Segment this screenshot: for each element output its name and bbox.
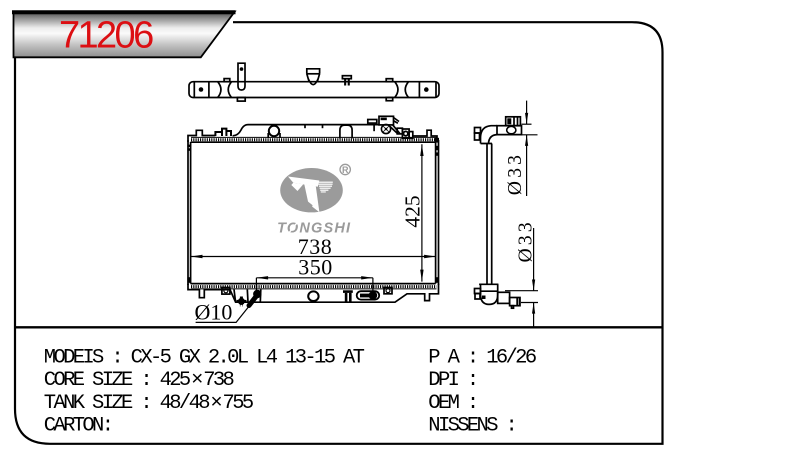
svg-text:OEM :: OEM : — [428, 392, 476, 415]
svg-text:CORE SIZE : 425×738: CORE SIZE : 425×738 — [44, 369, 234, 392]
svg-text:Ø33: Ø33 — [515, 219, 536, 262]
svg-text:CARTON:: CARTON: — [44, 415, 112, 438]
svg-text:P A : 16/26: P A : 16/26 — [428, 347, 536, 370]
svg-text:71206: 71206 — [59, 15, 153, 57]
svg-text:425: 425 — [401, 195, 425, 227]
svg-text:350: 350 — [298, 255, 333, 280]
svg-text:R: R — [342, 165, 349, 175]
svg-text:DPI :: DPI : — [428, 369, 476, 392]
svg-text:MODEIS : CX-5 GX 2.0L L4 13-15: MODEIS : CX-5 GX 2.0L L4 13-15 AT — [44, 347, 365, 370]
svg-text:Ø10: Ø10 — [195, 300, 233, 325]
svg-text:NISSENS :: NISSENS : — [428, 415, 515, 438]
svg-text:TONGSHI: TONGSHI — [277, 221, 351, 237]
svg-text:Ø33: Ø33 — [505, 152, 526, 195]
